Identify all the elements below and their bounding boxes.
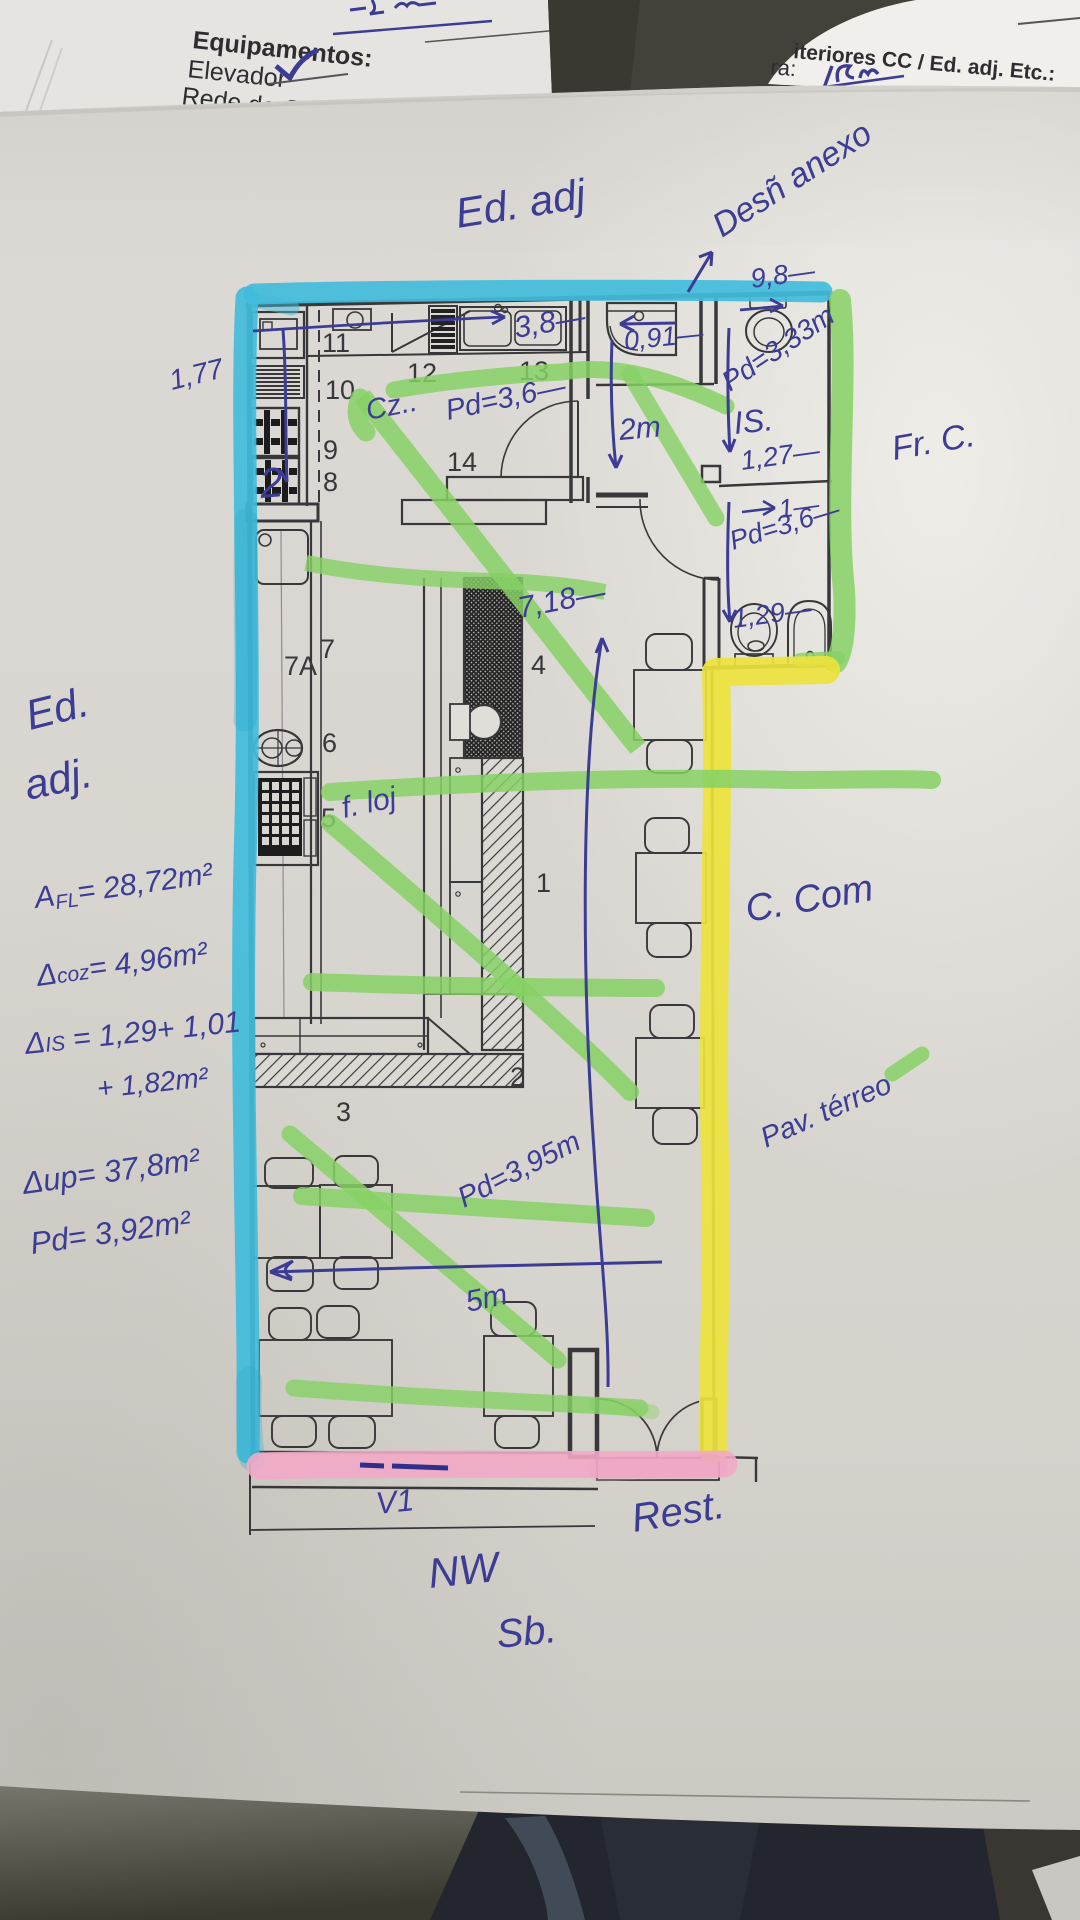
svg-text:2: 2	[257, 458, 285, 507]
svg-text:ra:: ra:	[770, 54, 798, 81]
svg-text:Sb.: Sb.	[494, 1607, 558, 1657]
svg-text:3: 3	[336, 1097, 351, 1127]
svg-text:9: 9	[323, 435, 338, 465]
svg-text:14: 14	[447, 447, 477, 477]
svg-text:1: 1	[536, 868, 551, 898]
svg-text:6: 6	[322, 728, 337, 758]
svg-text:8: 8	[323, 467, 338, 497]
svg-text:V1: V1	[374, 1482, 415, 1521]
svg-text:7: 7	[320, 634, 335, 664]
svg-text:4: 4	[531, 650, 546, 680]
svg-text:2: 2	[510, 1062, 525, 1092]
svg-text:7A: 7A	[284, 651, 317, 681]
svg-text:NW: NW	[426, 1543, 504, 1597]
svg-text:2m: 2m	[617, 410, 662, 447]
svg-text:IS.: IS.	[732, 401, 775, 441]
svg-text:11: 11	[322, 328, 350, 358]
